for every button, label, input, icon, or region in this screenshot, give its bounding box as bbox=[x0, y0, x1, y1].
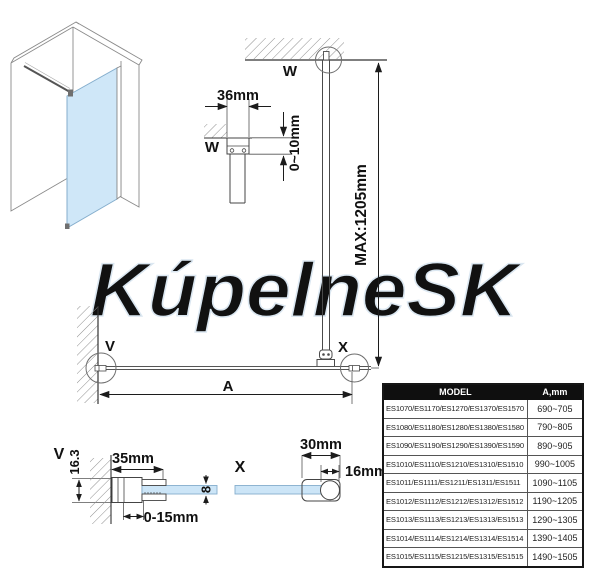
table-row: ES1013/ES1113/ES1213/ES1313/ES1513 1290~… bbox=[383, 511, 583, 530]
table-row: ES1080/ES1180/ES1280/ES1380/ES1580 790~8… bbox=[383, 418, 583, 437]
dim-35mm-label: 35mm bbox=[112, 451, 154, 467]
dim-30mm-label: 30mm bbox=[300, 437, 342, 453]
model-cell: ES1014/ES1114/ES1214/ES1314/ES1514 bbox=[383, 529, 527, 548]
table-row: ES1010/ES1110/ES1210/ES1310/ES1510 990~1… bbox=[383, 455, 583, 474]
model-cell: ES1015/ES1115/ES1215/ES1315/ES1515 bbox=[383, 548, 527, 567]
detail-w: 36mm 0~10mm W bbox=[204, 88, 302, 203]
table-header-row: MODEL A,mm bbox=[383, 384, 583, 400]
model-cell: ES1080/ES1180/ES1280/ES1380/ES1580 bbox=[383, 418, 527, 437]
dim-36mm-label: 36mm bbox=[217, 88, 259, 104]
model-column-header: MODEL bbox=[383, 384, 527, 400]
table-row: ES1015/ES1115/ES1215/ES1315/ES1515 1490~… bbox=[383, 548, 583, 567]
a-mm-column-header: A,mm bbox=[527, 384, 583, 400]
table-row: ES1070/ES1170/ES1270/ES1370/ES1570 690~7… bbox=[383, 400, 583, 419]
callout-label-v: V bbox=[105, 338, 115, 355]
table-row: ES1011/ES1111/ES1211/ES1311/ES1511 1090~… bbox=[383, 474, 583, 493]
callout-label-x: X bbox=[338, 339, 348, 356]
bar-section-circle bbox=[321, 481, 340, 500]
bar-base bbox=[317, 360, 335, 367]
a-mm-cell: 790~805 bbox=[527, 418, 583, 437]
dim-16mm-label: 16mm bbox=[345, 464, 387, 480]
table-row: ES1090/ES1190/ES1290/ES1390/ES1590 890~9… bbox=[383, 437, 583, 456]
glass-section-x bbox=[235, 486, 321, 495]
dim-a-label: A bbox=[223, 378, 234, 395]
brace-glass-fitting bbox=[68, 90, 73, 97]
detail-v: V 16.3 35mm 0-15mm 8 bbox=[54, 446, 217, 526]
dim-0-15mm-label: 0-15mm bbox=[144, 510, 199, 526]
dim-8mm-label: 8 bbox=[199, 486, 214, 493]
a-mm-cell: 690~705 bbox=[527, 400, 583, 419]
a-mm-cell: 1190~1205 bbox=[527, 492, 583, 511]
model-table: MODEL A,mm ES1070/ES1170/ES1270/ES1370/E… bbox=[382, 383, 584, 568]
bar-clamp bbox=[320, 350, 333, 359]
glass-edge-line bbox=[100, 367, 379, 370]
dim-16-3-label: 16.3 bbox=[67, 449, 82, 474]
model-cell: ES1010/ES1110/ES1210/ES1310/ES1510 bbox=[383, 455, 527, 474]
model-cell: ES1011/ES1111/ES1211/ES1311/ES1511 bbox=[383, 474, 527, 493]
model-cell: ES1012/ES1112/ES1212/ES1312/ES1512 bbox=[383, 492, 527, 511]
detail-v-label: V bbox=[54, 446, 65, 463]
detail-x-label: X bbox=[235, 459, 246, 476]
a-mm-cell: 1490~1505 bbox=[527, 548, 583, 567]
model-cell: ES1070/ES1170/ES1270/ES1370/ES1570 bbox=[383, 400, 527, 419]
isometric-overview bbox=[11, 22, 142, 229]
model-cell: ES1090/ES1190/ES1290/ES1390/ES1590 bbox=[383, 437, 527, 456]
detail-w-label: W bbox=[205, 139, 220, 156]
model-cell: ES1013/ES1113/ES1213/ES1313/ES1513 bbox=[383, 511, 527, 530]
watermark-text: KúpelneSK bbox=[90, 248, 523, 333]
a-mm-cell: 1090~1105 bbox=[527, 474, 583, 493]
a-mm-cell: 890~905 bbox=[527, 437, 583, 456]
detail-x: X 30mm 16mm bbox=[235, 437, 387, 501]
technical-drawing-page: KúpelneSK bbox=[0, 0, 600, 585]
callout-label-w: W bbox=[283, 63, 298, 80]
dim-0-10mm-label: 0~10mm bbox=[286, 115, 302, 171]
a-mm-cell: 1390~1405 bbox=[527, 529, 583, 548]
a-mm-cell: 1290~1305 bbox=[527, 511, 583, 530]
glass-bottom-fitting bbox=[65, 224, 70, 230]
detail-w-tube bbox=[230, 154, 245, 203]
a-mm-cell: 990~1005 bbox=[527, 455, 583, 474]
dim-max-label: MAX:1205mm bbox=[353, 164, 370, 266]
table-row: ES1012/ES1112/ES1212/ES1312/ES1512 1190~… bbox=[383, 492, 583, 511]
table-row: ES1014/ES1114/ES1214/ES1314/ES1514 1390~… bbox=[383, 529, 583, 548]
